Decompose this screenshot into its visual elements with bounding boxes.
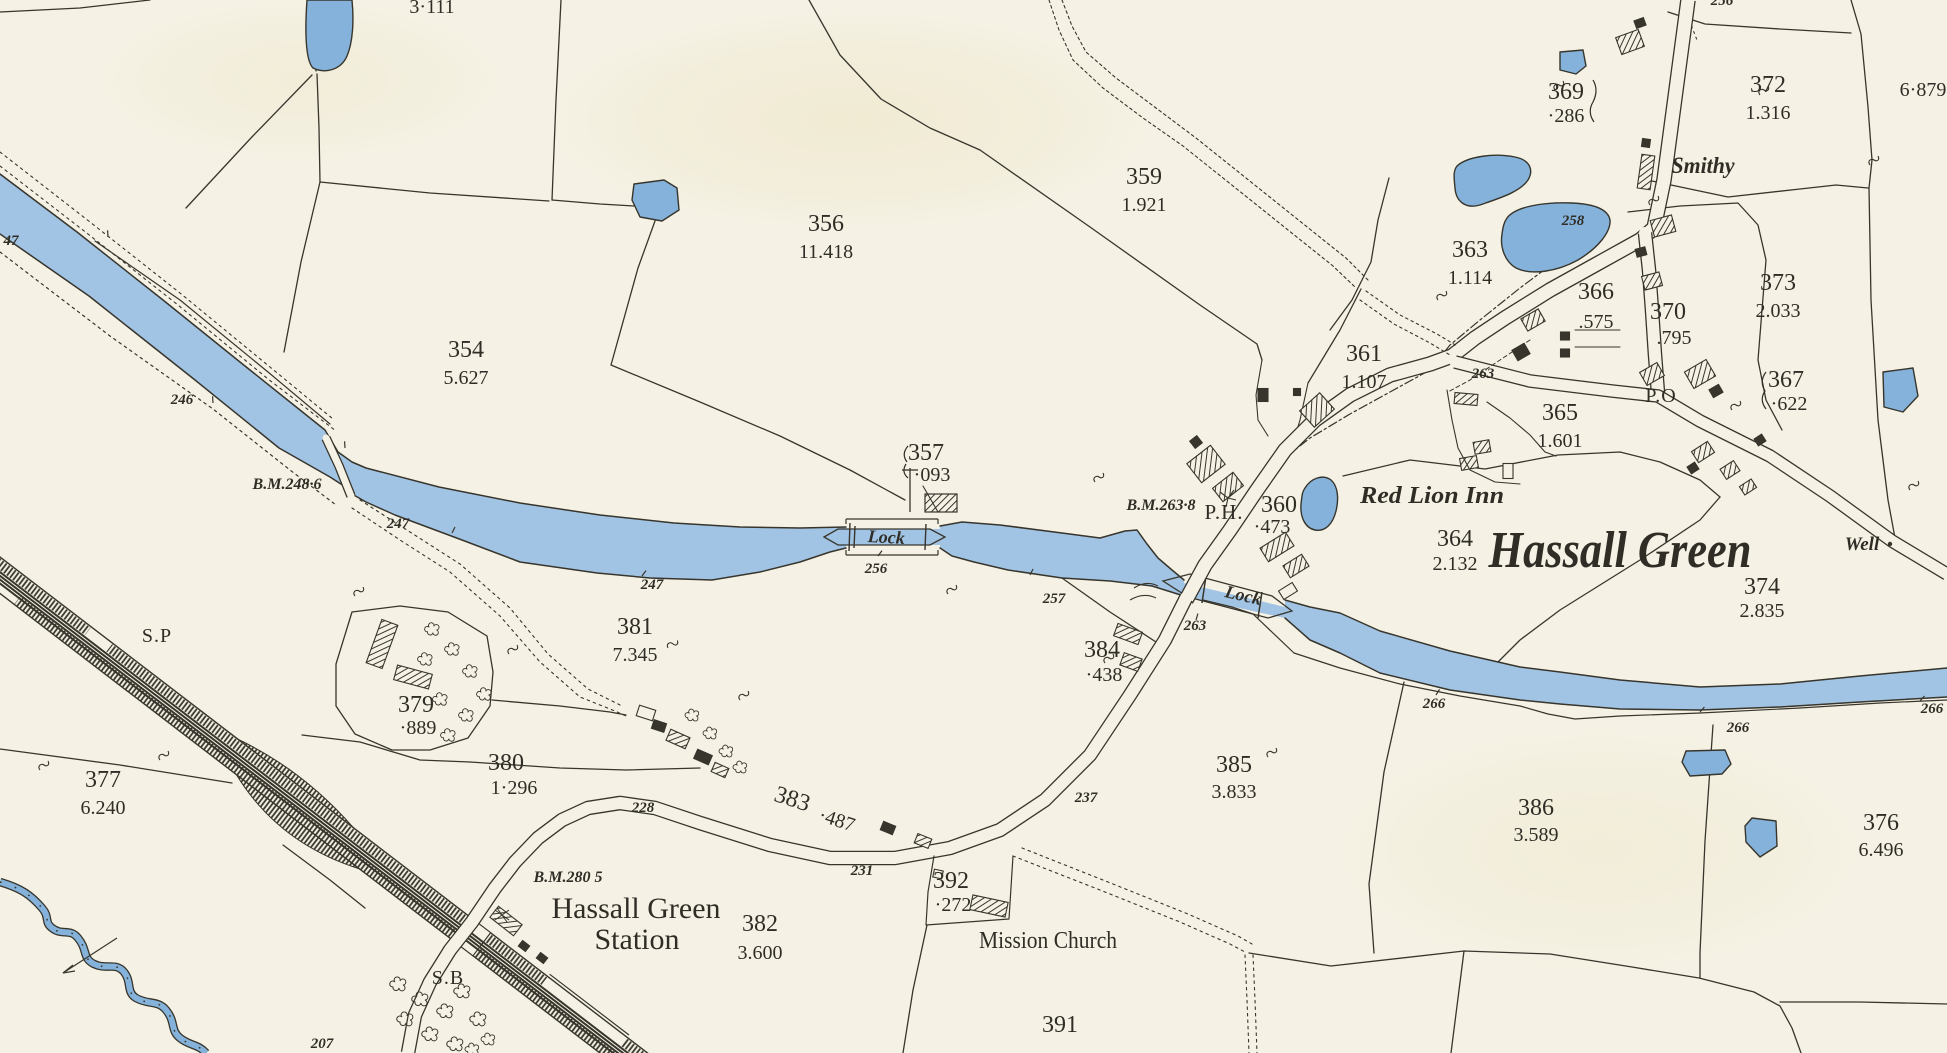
svg-text:Well: Well (1845, 534, 1880, 555)
svg-text:5.627: 5.627 (444, 367, 489, 389)
svg-text:3.600: 3.600 (738, 942, 783, 964)
svg-text:3.833: 3.833 (1212, 781, 1257, 803)
svg-text:·622: ·622 (1771, 393, 1808, 415)
svg-text:256: 256 (864, 561, 888, 577)
svg-text:247: 247 (640, 577, 664, 593)
svg-text:379: 379 (398, 692, 434, 718)
svg-text:372: 372 (1750, 72, 1786, 98)
svg-text:7.345: 7.345 (613, 644, 658, 666)
svg-text:263: 263 (1183, 618, 1207, 634)
svg-text:B.M.280 5: B.M.280 5 (533, 869, 603, 886)
svg-text:391: 391 (1042, 1012, 1078, 1038)
svg-text:376: 376 (1863, 810, 1899, 836)
svg-text:370: 370 (1650, 299, 1686, 325)
svg-text:258: 258 (1561, 213, 1585, 229)
svg-text:P.H.: P.H. (1204, 500, 1243, 524)
svg-text:2.132: 2.132 (1433, 553, 1478, 575)
svg-text:1.921: 1.921 (1122, 194, 1167, 216)
svg-text:359: 359 (1126, 164, 1162, 190)
svg-text:11.418: 11.418 (799, 241, 853, 263)
svg-text:231: 231 (850, 863, 874, 879)
svg-text:367: 367 (1768, 367, 1804, 393)
svg-text:S.B: S.B (432, 967, 464, 989)
svg-text:257: 257 (1042, 591, 1066, 607)
svg-text:Mission Church: Mission Church (979, 928, 1117, 954)
svg-text:6·879: 6·879 (1900, 79, 1947, 101)
svg-text:386: 386 (1518, 795, 1554, 821)
svg-text:266: 266 (1920, 701, 1944, 717)
svg-text:384: 384 (1084, 637, 1120, 663)
svg-text:6.240: 6.240 (81, 797, 126, 819)
svg-text:360: 360 (1261, 492, 1297, 518)
svg-text:47: 47 (3, 233, 20, 249)
svg-text:B.M.263·8: B.M.263·8 (1126, 497, 1196, 514)
svg-text:382: 382 (742, 911, 778, 937)
svg-text:Red Lion Inn: Red Lion Inn (1359, 483, 1504, 509)
svg-text:Lock: Lock (866, 526, 905, 548)
svg-text:247: 247 (386, 516, 410, 532)
svg-text:381: 381 (617, 614, 653, 640)
svg-text:3.589: 3.589 (1514, 824, 1559, 846)
svg-text:366: 366 (1578, 279, 1614, 305)
svg-text:392: 392 (933, 868, 969, 894)
svg-text:374: 374 (1744, 574, 1780, 600)
svg-text:·272: ·272 (935, 894, 972, 916)
svg-text:363: 363 (1452, 237, 1488, 263)
svg-text:1.107: 1.107 (1342, 371, 1387, 393)
svg-text:6.496: 6.496 (1859, 839, 1904, 861)
svg-text:2.033: 2.033 (1756, 300, 1801, 322)
svg-text:246: 246 (170, 392, 194, 408)
svg-text:·093: ·093 (914, 464, 951, 486)
svg-text:·286: ·286 (1548, 105, 1585, 127)
svg-text:237: 237 (1074, 790, 1098, 806)
svg-text:364: 364 (1437, 526, 1473, 552)
svg-text:1.601: 1.601 (1538, 430, 1583, 452)
svg-text:256: 256 (1710, 0, 1734, 9)
svg-text:1·296: 1·296 (491, 777, 538, 799)
svg-text:207: 207 (310, 1036, 334, 1052)
svg-text:361: 361 (1346, 341, 1382, 367)
svg-text:2.835: 2.835 (1740, 600, 1785, 622)
svg-text:266: 266 (1726, 720, 1750, 736)
svg-text:266: 266 (1422, 696, 1446, 712)
svg-text:385: 385 (1216, 752, 1252, 778)
svg-text:369: 369 (1548, 79, 1584, 105)
svg-text:1.114: 1.114 (1448, 267, 1492, 289)
svg-text:·889: ·889 (400, 717, 437, 739)
svg-text:B.M.248·6: B.M.248·6 (252, 476, 322, 493)
svg-text:263: 263 (1471, 366, 1495, 382)
svg-text:P.O: P.O (1645, 385, 1676, 407)
svg-text:·473: ·473 (1254, 516, 1291, 538)
svg-text:373: 373 (1760, 270, 1796, 296)
svg-text:S.P: S.P (142, 625, 172, 647)
svg-text:357: 357 (908, 440, 944, 466)
svg-text:.575: .575 (1579, 311, 1614, 333)
svg-text:377: 377 (85, 767, 121, 793)
svg-text:Station: Station (594, 923, 679, 956)
svg-text:228: 228 (631, 800, 655, 816)
svg-text:Hassall Green: Hassall Green (1488, 522, 1752, 579)
svg-text:3·111: 3·111 (409, 0, 454, 18)
svg-text:365: 365 (1542, 400, 1578, 426)
svg-text:·438: ·438 (1086, 664, 1123, 686)
svg-text:1.316: 1.316 (1746, 102, 1791, 124)
svg-text:Smithy: Smithy (1672, 153, 1736, 178)
svg-text:Hassall Green: Hassall Green (551, 892, 720, 925)
svg-text:380: 380 (488, 750, 524, 776)
svg-text:.795: .795 (1657, 327, 1692, 349)
svg-text:356: 356 (808, 211, 844, 237)
svg-text:354: 354 (448, 337, 484, 363)
